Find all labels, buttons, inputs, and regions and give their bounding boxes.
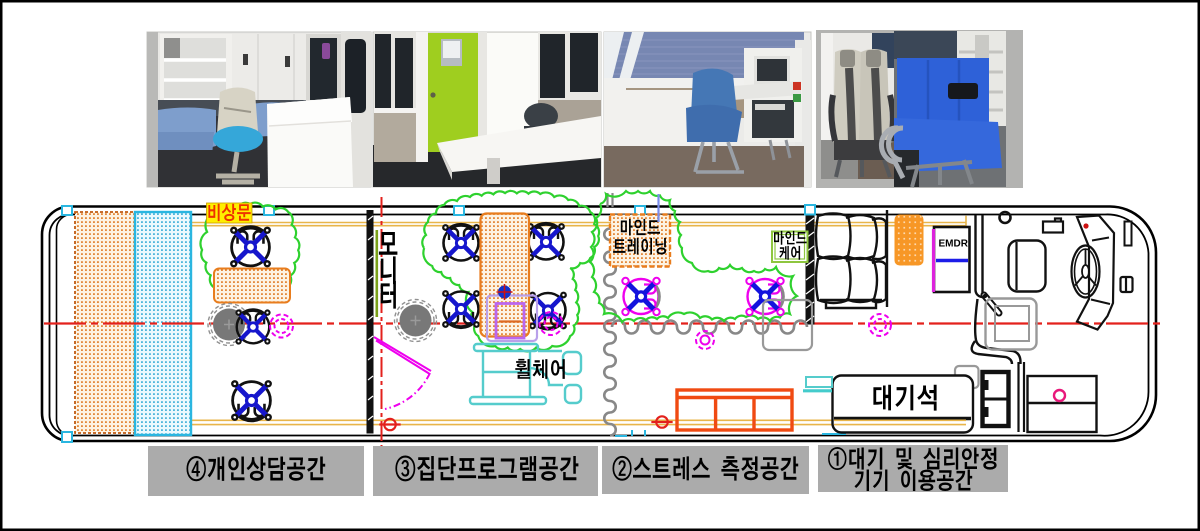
svg-text:EMDR: EMDR bbox=[939, 239, 969, 250]
